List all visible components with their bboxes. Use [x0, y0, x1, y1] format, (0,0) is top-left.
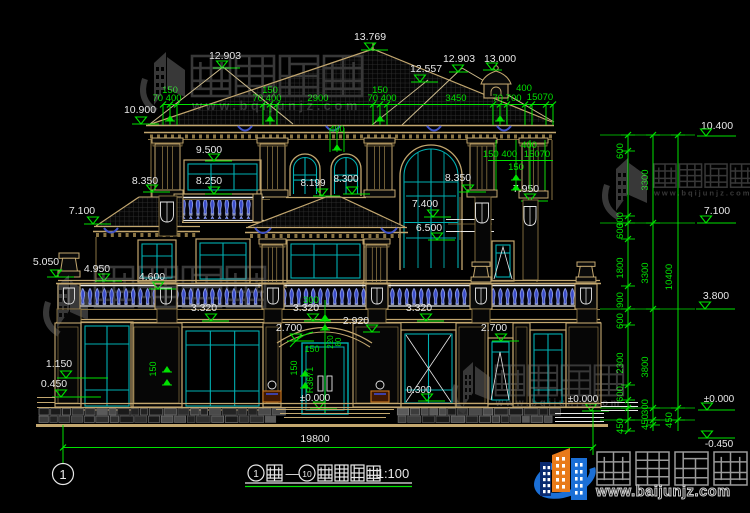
svg-text:7.100: 7.100: [69, 205, 95, 217]
svg-text:6.500: 6.500: [416, 222, 442, 234]
svg-text:10400: 10400: [664, 264, 675, 290]
svg-text:3.800: 3.800: [703, 290, 729, 302]
svg-text:www.bqijunjz.com: www.bqijunjz.com: [191, 98, 361, 113]
svg-text:1.150: 1.150: [46, 358, 72, 370]
svg-text:450: 450: [615, 418, 626, 434]
svg-text:0.450: 0.450: [41, 378, 67, 390]
svg-text:8.199: 8.199: [300, 178, 325, 189]
svg-text:400: 400: [329, 124, 344, 134]
svg-text:4.950: 4.950: [84, 263, 110, 275]
svg-text:R3671: R3671: [305, 367, 315, 394]
svg-text:2.700: 2.700: [276, 322, 302, 334]
svg-text:900: 900: [615, 292, 626, 308]
svg-text:15070: 15070: [527, 92, 553, 103]
svg-text:www.bqijunjz.com: www.bqijunjz.com: [653, 188, 750, 197]
svg-text:150: 150: [289, 360, 299, 375]
svg-text:7.100: 7.100: [704, 205, 730, 217]
svg-text:3300: 3300: [640, 262, 651, 283]
svg-text:8.250: 8.250: [196, 175, 222, 187]
svg-text:3.320: 3.320: [293, 302, 319, 314]
svg-text:1:100: 1:100: [377, 466, 410, 481]
svg-text:3.320: 3.320: [406, 302, 432, 314]
svg-text:600: 600: [615, 223, 626, 239]
svg-text:10.400: 10.400: [701, 120, 733, 132]
svg-text:www.baijunjz.com: www.baijunjz.com: [595, 484, 731, 500]
svg-text:13.769: 13.769: [354, 31, 386, 43]
svg-text:5.050: 5.050: [33, 256, 59, 268]
svg-text:10: 10: [302, 469, 312, 479]
svg-text:2.700: 2.700: [481, 322, 507, 334]
svg-text:8.350: 8.350: [445, 172, 471, 184]
svg-text:300: 300: [640, 399, 651, 415]
svg-text:150: 150: [508, 162, 524, 173]
svg-text:8.300: 8.300: [333, 174, 358, 185]
svg-text:www.bqijunjz.com: www.bqijunjz.com: [495, 398, 622, 409]
svg-text:450: 450: [640, 414, 651, 430]
svg-text:7.400: 7.400: [412, 198, 438, 210]
svg-text:450: 450: [664, 412, 675, 428]
svg-text:12.903: 12.903: [443, 53, 475, 65]
svg-text:600: 600: [615, 143, 626, 159]
svg-text:3800: 3800: [640, 356, 651, 377]
svg-text:70 400: 70 400: [367, 93, 396, 104]
svg-text:2.920: 2.920: [343, 315, 369, 327]
svg-text:1: 1: [59, 467, 66, 482]
svg-text:80: 80: [334, 337, 343, 346]
svg-text:12.557: 12.557: [410, 63, 442, 75]
svg-text:150: 150: [148, 361, 158, 376]
svg-text:70 700: 70 700: [492, 93, 521, 104]
svg-text:150 400: 150 400: [483, 149, 517, 160]
svg-text:150: 150: [304, 344, 319, 354]
svg-text:3450: 3450: [445, 93, 466, 104]
svg-text:19800: 19800: [300, 433, 329, 445]
svg-text:600: 600: [615, 313, 626, 329]
svg-text:1800: 1800: [615, 257, 626, 278]
svg-text:1: 1: [253, 469, 259, 480]
svg-text:—: —: [286, 466, 299, 481]
svg-text:-0.450: -0.450: [705, 439, 734, 450]
svg-text:15070: 15070: [524, 149, 550, 160]
